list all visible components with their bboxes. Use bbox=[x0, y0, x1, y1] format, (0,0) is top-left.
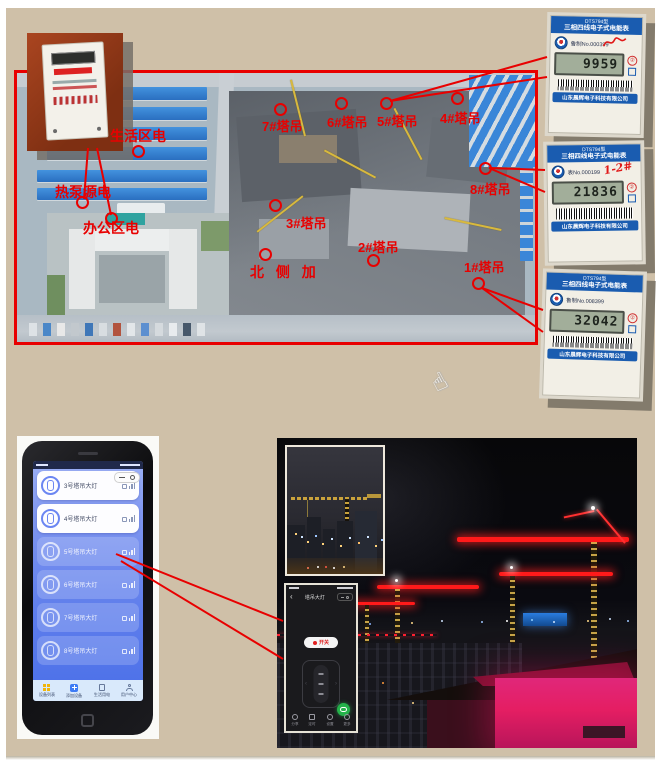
meter-handwriting: 1-2# bbox=[602, 159, 633, 177]
nav-label: 生活用电 bbox=[94, 692, 110, 697]
nav-label: 设备列表 bbox=[39, 692, 55, 697]
crane-floodlight bbox=[591, 506, 595, 510]
chevron-right-icon: › bbox=[335, 681, 337, 687]
miniprogram-controls[interactable] bbox=[337, 593, 353, 601]
home-button[interactable] bbox=[81, 714, 94, 727]
device-icon bbox=[41, 509, 60, 528]
inset-control-screen: ‹ 塔吊大灯 开关 ‹ › 分享 定时 设置 更多 bbox=[284, 583, 358, 733]
label-living-area: 生活区电 bbox=[110, 126, 166, 146]
device-icon bbox=[41, 575, 60, 594]
marker-north-side bbox=[259, 248, 272, 261]
map-office-courtyard bbox=[99, 255, 165, 303]
slide-bottom-shadow bbox=[6, 756, 655, 760]
signal-icon bbox=[129, 548, 136, 555]
timer-icon bbox=[122, 550, 127, 555]
device-label: 8号塔吊大灯 bbox=[64, 646, 122, 655]
smartphone-photo: 3号塔吊大灯 4号塔吊大灯 5号塔吊大灯 bbox=[17, 436, 159, 739]
signal-icon bbox=[129, 515, 136, 522]
device-status-icons bbox=[122, 548, 136, 555]
socket-icon bbox=[47, 579, 54, 590]
meter-lcd-reading: 9959 bbox=[554, 52, 624, 76]
window-lights bbox=[295, 533, 297, 535]
crane-floodlight bbox=[395, 579, 398, 582]
meter-label-strip bbox=[53, 95, 97, 105]
crane-mast bbox=[365, 605, 369, 647]
meter-button-icon bbox=[628, 194, 636, 202]
slide-canvas: 生活区电 热泵源电 办公区电 北 侧 加 7#塔吊 6#塔吊 5#塔吊 4#塔吊… bbox=[0, 0, 661, 763]
phone-speaker bbox=[78, 452, 98, 455]
meter-seal-icon: ② bbox=[627, 182, 637, 192]
action-timer[interactable]: 定时 bbox=[304, 714, 322, 727]
device-card-crane-5-lamp[interactable]: 5号塔吊大灯 bbox=[37, 537, 139, 566]
map-right-roofs bbox=[520, 161, 533, 261]
signal-icon bbox=[129, 614, 136, 621]
device-label: 4号塔吊大灯 bbox=[64, 514, 122, 523]
map-green-area bbox=[47, 275, 65, 317]
nav-label: 添加设备 bbox=[66, 693, 82, 698]
meter-barcode bbox=[553, 336, 633, 350]
crane-apex-cable bbox=[564, 510, 595, 518]
control-header: ‹ 塔吊大灯 bbox=[286, 591, 356, 603]
document-icon bbox=[99, 684, 105, 691]
meter-display-window bbox=[51, 51, 96, 65]
device-status-icons bbox=[122, 581, 136, 588]
signal-icon bbox=[129, 482, 136, 489]
control-title: 塔吊大灯 bbox=[293, 594, 337, 601]
meter-screw bbox=[97, 127, 101, 131]
crane-mast bbox=[395, 589, 400, 645]
device-label: 3号塔吊大灯 bbox=[64, 481, 122, 490]
add-icon bbox=[70, 684, 78, 692]
device-label: 5号塔吊大灯 bbox=[64, 547, 122, 556]
crane-red-light-bar bbox=[377, 585, 479, 589]
meter-company: 山东晨辉电子科技有限公司 bbox=[552, 92, 637, 104]
crane-jib-silhouette bbox=[291, 497, 367, 500]
marker-crane-1 bbox=[472, 277, 485, 290]
label-heat-pump: 热泵源电 bbox=[55, 182, 111, 202]
meter-spec-line bbox=[53, 85, 97, 90]
timer-icon bbox=[122, 649, 127, 654]
label-crane-1: 1#塔吊 bbox=[464, 257, 504, 276]
socket-icon bbox=[47, 546, 54, 557]
label-crane-2: 2#塔吊 bbox=[358, 237, 398, 256]
crane-red-light-bar bbox=[499, 572, 613, 576]
meter-seal-icon: ② bbox=[627, 313, 637, 323]
meter-spec-line bbox=[52, 79, 96, 84]
action-label: 更多 bbox=[344, 721, 351, 726]
crane-mast bbox=[510, 576, 515, 648]
rocker-switch-control[interactable]: ‹ › bbox=[302, 660, 340, 708]
app-bottom-nav: 设备列表 添加设备 生活用电 用户中心 bbox=[33, 680, 143, 701]
label-crane-7: 7#塔吊 bbox=[262, 116, 302, 135]
device-label: 7号塔吊大灯 bbox=[64, 613, 122, 622]
map-road-bottom bbox=[17, 315, 535, 342]
crane-red-light-bar bbox=[457, 537, 629, 542]
device-status-icons bbox=[122, 614, 136, 621]
nav-add-device[interactable]: 添加设备 bbox=[61, 680, 89, 701]
label-north-side: 北 侧 加 bbox=[250, 262, 320, 282]
label-crane-4: 4#塔吊 bbox=[440, 108, 480, 127]
meter-company: 山东晨辉电子科技有限公司 bbox=[551, 220, 638, 231]
signal-icon bbox=[129, 581, 136, 588]
marker-crane-3 bbox=[269, 199, 282, 212]
action-label: 设置 bbox=[326, 721, 333, 726]
device-icon bbox=[41, 542, 60, 561]
meter-box-photo bbox=[27, 33, 123, 151]
meter-barcode bbox=[556, 207, 633, 219]
status-battery-icon bbox=[120, 464, 140, 466]
meter-lcd-reading: 21836 bbox=[552, 181, 624, 205]
socket-icon bbox=[47, 480, 54, 491]
inset-crane-night-photo bbox=[285, 445, 385, 576]
marker-living-area bbox=[132, 145, 145, 158]
control-action-bar: 分享 定时 设置 更多 bbox=[286, 714, 356, 727]
meter-brand-logo-icon bbox=[555, 36, 568, 49]
more-icon bbox=[344, 714, 350, 720]
power-toggle-button[interactable]: 开关 bbox=[304, 637, 338, 648]
label-crane-8: 8#塔吊 bbox=[470, 179, 510, 198]
phone-app-screen: 3号塔吊大灯 4号塔吊大灯 5号塔吊大灯 bbox=[33, 461, 143, 701]
device-label: 6号塔吊大灯 bbox=[64, 580, 122, 589]
device-card-crane-8-lamp[interactable]: 8号塔吊大灯 bbox=[37, 636, 139, 665]
night-site-photo: ‹ 塔吊大灯 开关 ‹ › 分享 定时 设置 更多 bbox=[277, 438, 637, 748]
crane-red-light-bar bbox=[351, 602, 415, 605]
phone-status-bar bbox=[33, 461, 143, 469]
crane-counterjib bbox=[367, 494, 381, 498]
user-icon bbox=[126, 684, 133, 691]
meter-unit bbox=[42, 41, 109, 140]
action-label: 定时 bbox=[309, 721, 316, 726]
device-card-crane-7-lamp[interactable]: 7号塔吊大灯 bbox=[37, 603, 139, 632]
label-crane-5: 5#塔吊 bbox=[377, 111, 417, 130]
meter-screw bbox=[53, 129, 57, 133]
map-parked-trucks bbox=[29, 323, 37, 336]
meter-company: 山东晨辉电子科技有限公司 bbox=[547, 349, 637, 362]
power-label: 开关 bbox=[319, 639, 329, 646]
minimize-icon[interactable] bbox=[119, 477, 125, 479]
nav-life-power[interactable]: 生活用电 bbox=[88, 680, 116, 701]
action-settings[interactable]: 设置 bbox=[321, 714, 339, 727]
timer-icon bbox=[122, 616, 127, 621]
status-battery-icon bbox=[337, 587, 353, 589]
device-icon bbox=[41, 641, 60, 660]
phone-bezel: 3号塔吊大灯 4号塔吊大灯 5号塔吊大灯 bbox=[22, 441, 153, 735]
action-label: 分享 bbox=[291, 721, 298, 726]
lit-building bbox=[523, 613, 567, 626]
timer-icon bbox=[122, 484, 127, 489]
device-status-icons bbox=[122, 482, 136, 489]
energy-meter-photo-2: DTS794型 三相四线电子式电能表 表No.000199 1-2# 21836… bbox=[543, 140, 646, 265]
label-crane-3: 3#塔吊 bbox=[286, 213, 326, 232]
pink-lit-building bbox=[495, 678, 637, 748]
car-lights bbox=[317, 566, 319, 568]
device-status-icons bbox=[122, 647, 136, 654]
grid-icon bbox=[43, 684, 50, 691]
marker-crane-7 bbox=[274, 103, 287, 116]
meter-brand-mark bbox=[54, 67, 92, 75]
device-card-crane-4-lamp[interactable]: 4号塔吊大灯 bbox=[37, 504, 139, 533]
meter-serial: 鲁制No.008399 bbox=[566, 296, 604, 305]
meter-barcode bbox=[558, 79, 633, 92]
energy-meter-photo-1: DTS794型 三相四线电子式电能表 鲁制No.000399 9959 ② 山东… bbox=[545, 12, 647, 138]
socket-icon bbox=[47, 645, 54, 656]
map-office-compound bbox=[47, 213, 259, 323]
gear-icon bbox=[327, 714, 333, 720]
meter-seal-icon: ② bbox=[627, 55, 637, 65]
status-carrier-icon bbox=[36, 464, 48, 466]
chevron-left-icon: ‹ bbox=[305, 681, 307, 687]
label-crane-6: 6#塔吊 bbox=[327, 112, 367, 131]
marker-crane-5 bbox=[380, 97, 393, 110]
map-office-building bbox=[69, 229, 95, 309]
device-icon bbox=[41, 476, 60, 495]
status-time-icon bbox=[289, 587, 299, 589]
label-office-area: 办公区电 bbox=[83, 218, 139, 238]
marker-crane-4 bbox=[451, 92, 464, 105]
device-icon bbox=[41, 608, 60, 627]
action-more[interactable]: 更多 bbox=[339, 714, 357, 727]
nav-user-center[interactable]: 用户中心 bbox=[116, 680, 144, 701]
crane-floodlight bbox=[510, 566, 513, 569]
device-status-icons bbox=[122, 515, 136, 522]
power-dot-icon bbox=[313, 641, 317, 645]
socket-icon bbox=[47, 612, 54, 623]
minimize-icon[interactable] bbox=[341, 597, 344, 598]
banner-on-building bbox=[583, 726, 625, 738]
device-card-list: 3号塔吊大灯 4号塔吊大灯 5号塔吊大灯 bbox=[37, 471, 139, 669]
action-share[interactable]: 分享 bbox=[286, 714, 304, 727]
rocker-stick[interactable] bbox=[314, 665, 329, 703]
meter-lcd-reading: 32042 bbox=[549, 309, 625, 334]
meter-brand-logo-icon bbox=[550, 293, 563, 306]
red-handwriting-scribble bbox=[602, 35, 628, 50]
marker-crane-6 bbox=[335, 97, 348, 110]
timer-icon bbox=[122, 583, 127, 588]
marker-crane-8 bbox=[479, 162, 492, 175]
close-icon[interactable] bbox=[130, 475, 135, 480]
nav-label: 用户中心 bbox=[121, 692, 137, 697]
close-icon[interactable] bbox=[346, 596, 349, 599]
dark-red-structure bbox=[427, 700, 495, 748]
map-office-building bbox=[169, 229, 197, 309]
energy-meter-photo-3: DTS794型 三相四线电子式电能表 鲁制No.008399 32042 ② 山… bbox=[539, 268, 647, 401]
meter-brand-logo-icon bbox=[551, 165, 564, 178]
map-dorm-roof bbox=[37, 170, 207, 182]
timer-icon bbox=[309, 714, 315, 720]
socket-icon bbox=[47, 513, 54, 524]
street-glow bbox=[287, 558, 383, 574]
miniprogram-controls[interactable] bbox=[114, 472, 140, 483]
meter-button-icon bbox=[628, 67, 636, 75]
device-card-crane-6-lamp[interactable]: 6号塔吊大灯 bbox=[37, 570, 139, 599]
meter-button-icon bbox=[628, 325, 636, 333]
meter-serial: 表No.000199 bbox=[568, 167, 601, 175]
map-pit-soil-patch bbox=[279, 135, 337, 163]
nav-device-list[interactable]: 设备列表 bbox=[33, 680, 61, 701]
signal-icon bbox=[129, 647, 136, 654]
share-icon bbox=[292, 714, 298, 720]
timer-icon bbox=[122, 517, 127, 522]
